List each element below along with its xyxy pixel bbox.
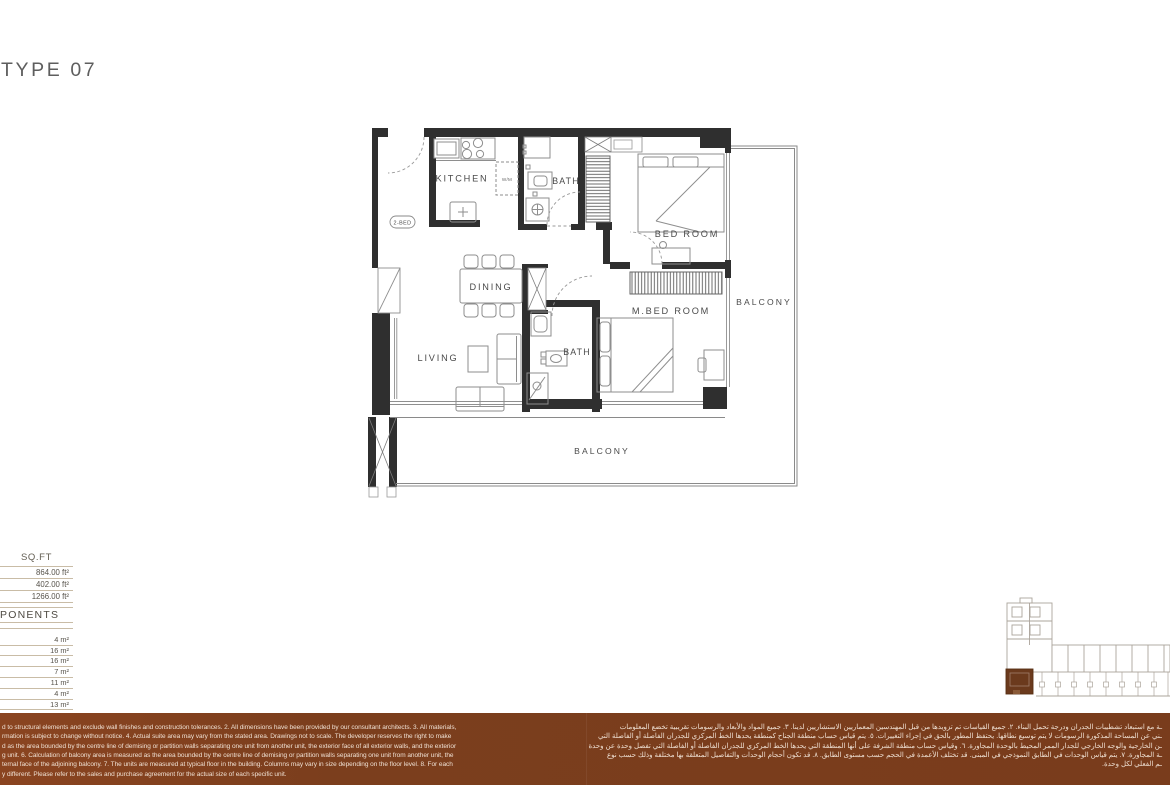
room-label-living: LIVING: [418, 353, 459, 363]
key-plan-highlighted-unit: [1006, 669, 1033, 694]
disclaimer-english: d to structural elements and exclude wal…: [2, 723, 456, 779]
disclaimer-arabic-line: ـني عن المساحة المذكورة الرسومات لا يتم …: [682, 732, 1162, 741]
room-label-bath-top: BATH: [552, 176, 580, 186]
room-label-master-bedroom: M.BED ROOM: [632, 306, 710, 316]
area-table: SQ.FT 864.00 ft² 402.00 ft² 1266.00 ft² …: [0, 551, 73, 710]
disclaimer-english-line: d as the area bounded by the centre line…: [2, 742, 456, 751]
room-label-balcony-side: BALCONY: [736, 297, 792, 307]
disclaimer-english-line: ternal face of the adjoining balcony. 7.…: [2, 760, 456, 769]
key-plan: [1006, 598, 1170, 696]
area-table-components-header: PONENTS: [0, 608, 73, 623]
disclaimer-band: d to structural elements and exclude wal…: [0, 713, 1170, 785]
band-seam-divider: [586, 713, 587, 785]
disclaimer-arabic-line: ـة المجاورة. ٧. يتم قياس الوحدات في الطا…: [682, 751, 1162, 760]
room-label-kitchen: KITCHEN: [436, 174, 489, 184]
room-label-bath-master: BATH: [563, 347, 591, 357]
disclaimer-english-line: d to structural elements and exclude wal…: [2, 723, 456, 732]
room-label-balcony-bottom: BALCONY: [574, 446, 630, 456]
area-table-row: 864.00 ft²: [0, 567, 73, 579]
component-row: 16 m²: [0, 656, 73, 667]
component-rows: 4 m² 16 m² 16 m² 7 m² 11 m² 4 m² 13 m²: [0, 635, 73, 711]
component-row: 4 m²: [0, 635, 73, 646]
component-row: 16 m²: [0, 646, 73, 657]
disclaimer-arabic-line: ـم الفعلي لكل وحدة.: [682, 760, 1162, 769]
room-label-bedroom: BED ROOM: [655, 229, 719, 239]
component-row: 4 m²: [0, 689, 73, 700]
disclaimer-arabic-line: ـن الخارجية والوجه الخارجي للجدار الممر …: [682, 742, 1162, 751]
unit-tag: 2-BED: [390, 216, 415, 228]
room-label-dining: DINING: [470, 282, 513, 292]
floor-plan-drawing: 2-BED KITCHEN BATH BED ROOM DINING LIVIN…: [0, 0, 1170, 785]
component-row: 7 m²: [0, 667, 73, 678]
area-table-row: 402.00 ft²: [0, 579, 73, 591]
disclaimer-arabic-line: ـة مع استبعاد تشطيبات الجدران ودرجة تحمل…: [682, 723, 1162, 732]
disclaimer-english-line: y different. Please refer to the sales a…: [2, 770, 456, 779]
component-row: 11 m²: [0, 678, 73, 689]
washer-label: W/M: [502, 177, 512, 182]
area-table-sqft-header: SQ.FT: [0, 551, 73, 567]
area-table-row: 1266.00 ft²: [0, 591, 73, 603]
disclaimer-arabic: ـة مع استبعاد تشطيبات الجدران ودرجة تحمل…: [682, 723, 1162, 770]
brochure-page: { "page": { "title": "TYPE 07" }, "floor…: [0, 0, 1170, 785]
unit-tag-label: 2-BED: [394, 220, 412, 226]
component-row: 13 m²: [0, 700, 73, 711]
disclaimer-english-line: g unit. 6. Calculation of balcony area i…: [2, 751, 456, 760]
table-section-divider: [0, 623, 73, 629]
disclaimer-english-line: rmation is subject to change without not…: [2, 732, 456, 741]
